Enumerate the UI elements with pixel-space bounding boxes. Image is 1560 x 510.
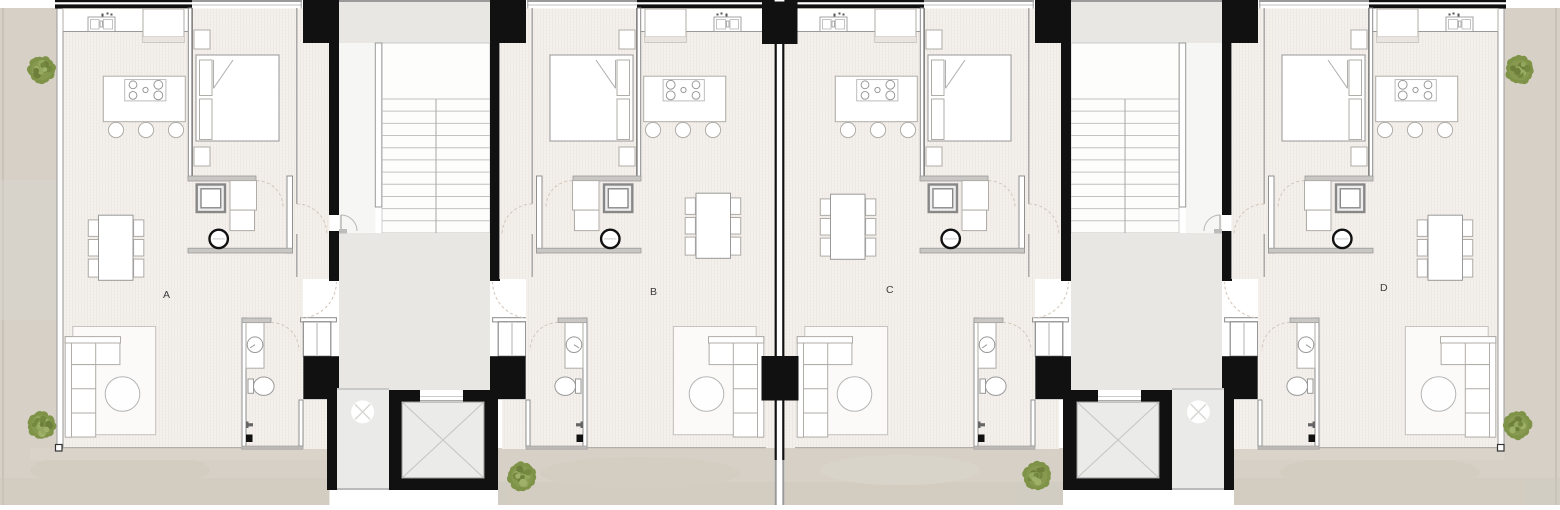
svg-text:D: D xyxy=(1380,282,1388,294)
svg-text:B: B xyxy=(650,286,657,298)
svg-text:C: C xyxy=(886,284,894,296)
svg-text:A: A xyxy=(163,289,170,301)
